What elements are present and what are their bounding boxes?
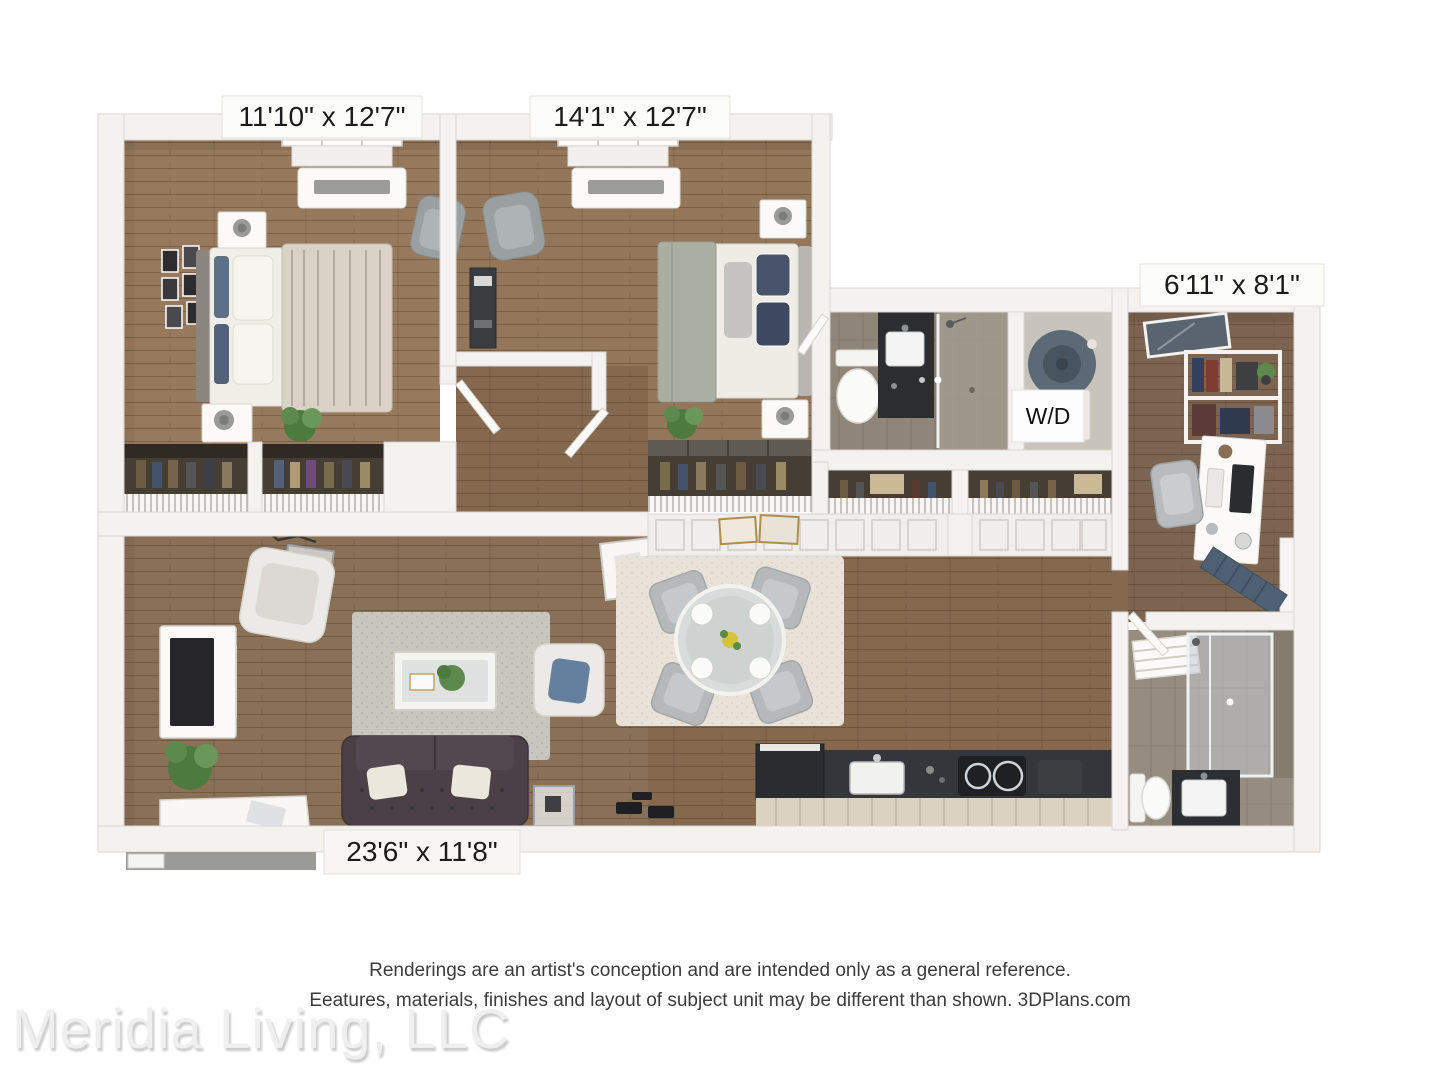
desk: [1194, 436, 1266, 564]
kitchen: [756, 744, 1112, 828]
coffee-table: [394, 652, 496, 710]
dresser: [470, 268, 496, 348]
room-dimension-label: 14'1" x 12'7": [530, 96, 730, 138]
storage-box: [1074, 474, 1102, 494]
closet: [262, 444, 384, 512]
nightstand: [760, 200, 806, 238]
room-dimension-label: 11'10" x 12'7": [222, 96, 422, 138]
bed: [196, 244, 392, 412]
nightstand: [762, 400, 808, 438]
ac-unit: [298, 168, 406, 208]
stove-cooktop: [958, 756, 1026, 796]
armchair: [237, 545, 337, 645]
vanity-sink: [878, 312, 934, 418]
side-table: [534, 786, 574, 826]
storage-box: [870, 474, 904, 494]
dining-area: [616, 556, 844, 728]
nightstand: [202, 404, 252, 442]
nightstand: [218, 212, 266, 248]
disclaimer: Renderings are an artist's conception an…: [0, 956, 1440, 1016]
small-appliance: [1038, 760, 1082, 794]
dining-table: [676, 586, 784, 694]
toilet: [836, 350, 880, 423]
bedroom-2-dimensions: 14'1" x 12'7": [553, 101, 707, 132]
tv-console: [160, 626, 236, 738]
floor-plan-svg: 11'10" x 12'7" 14'1" x 12'7" 6'11" x 8'1…: [0, 0, 1440, 1080]
desk-chair: [1150, 459, 1204, 529]
bedroom-1-dimensions: 11'10" x 12'7": [238, 101, 405, 132]
closet: [124, 444, 248, 512]
washer-dryer-label: W/D: [1012, 390, 1084, 442]
closet: [648, 440, 812, 512]
room-dimension-label: 23'6" x 11'8": [324, 830, 520, 874]
shower: [1188, 634, 1272, 776]
disclaimer-line-2: Eeatures, materials, finishes and layout…: [0, 986, 1440, 1016]
closet: [968, 470, 1112, 514]
floor-plan-image: 11'10" x 12'7" 14'1" x 12'7" 6'11" x 8'1…: [0, 0, 1440, 1080]
den-dimensions: 6'11" x 8'1": [1164, 269, 1300, 300]
tv: [170, 638, 214, 726]
disclaimer-line-1: Renderings are an artist's conception an…: [0, 956, 1440, 986]
armchair: [534, 644, 604, 716]
living-room-dimensions: 23'6" x 11'8": [346, 836, 497, 867]
room-dimension-label: 6'11" x 8'1": [1140, 264, 1324, 306]
bar-front: [756, 798, 1112, 828]
toilet: [1130, 774, 1170, 822]
refrigerator: [756, 744, 824, 800]
sofa: [342, 736, 528, 826]
vanity-sink: [1172, 770, 1240, 826]
closet: [828, 470, 952, 514]
washer-dryer-text: W/D: [1026, 403, 1071, 429]
accent-chair: [481, 190, 547, 263]
bed: [658, 242, 812, 402]
closet-door-panels: [648, 514, 1112, 556]
ac-unit: [572, 168, 680, 208]
doormat: [126, 852, 316, 870]
